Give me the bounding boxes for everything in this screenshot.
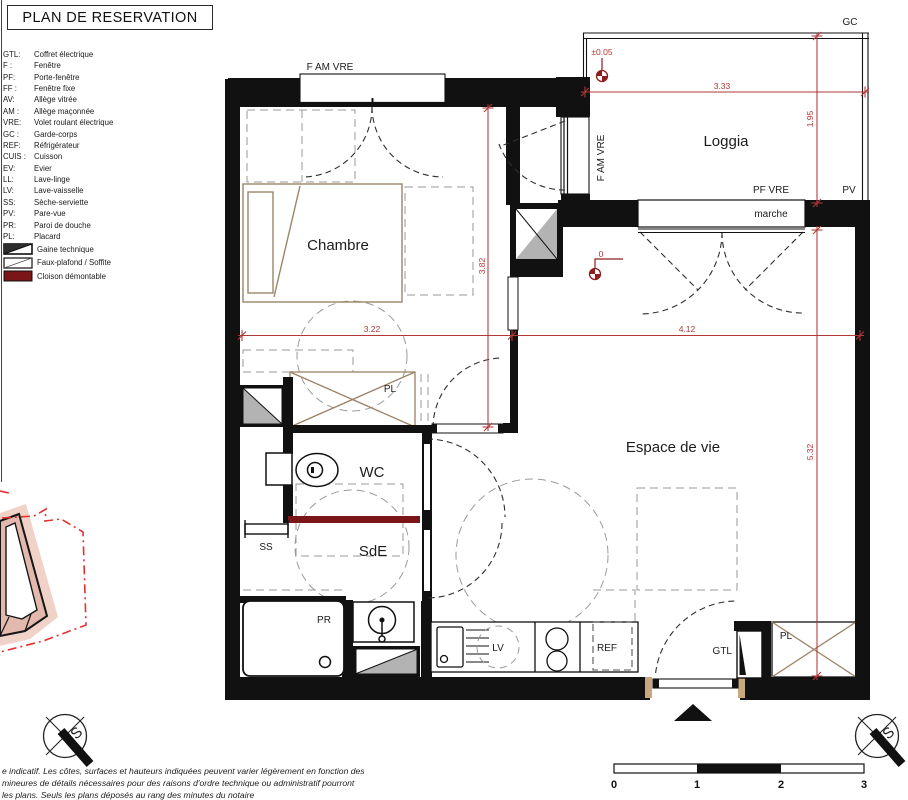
scale-tick-label: 1	[694, 779, 700, 791]
entrance-door	[645, 675, 745, 700]
furniture-dashed	[243, 110, 737, 672]
dim-chambre-width: 3.22	[364, 324, 381, 334]
cloison-demontable	[288, 516, 420, 523]
label-marche: marche	[754, 209, 788, 220]
window-chambre	[300, 74, 445, 107]
scale-tick-label: 0	[611, 779, 617, 791]
window-loggia	[561, 117, 589, 194]
room-label-chambre: Chambre	[307, 237, 369, 254]
footer-line: e indicatif. Les côtes, surfaces et haut…	[2, 766, 472, 778]
room-label-espace: Espace de vie	[626, 439, 720, 456]
entrance-arrow-icon	[674, 704, 712, 721]
gaine-technique-box	[353, 646, 420, 677]
door-leaves	[424, 424, 504, 596]
washbasin	[353, 602, 414, 642]
dimension-lines	[238, 32, 869, 680]
label-pl-chambre: PL	[384, 384, 397, 395]
towel-radiator	[245, 520, 288, 538]
placard-chambre-box	[290, 372, 415, 427]
dim-espace-width: 4.12	[679, 324, 696, 334]
scale-tick-label: 2	[778, 779, 784, 791]
gtl-box	[737, 631, 762, 678]
level-value-loggia: ±0.05	[591, 47, 612, 57]
level-marker-loggia	[597, 58, 608, 82]
level-value-espace: 0	[599, 249, 604, 259]
shower-tray	[243, 601, 344, 676]
room-label-sde: SdE	[359, 543, 387, 560]
floor-plan: S S 0 1 2 3 Chambre Loggia WC SdE Espace…	[0, 0, 908, 800]
dim-chambre-depth: 3.82	[477, 257, 487, 274]
door-swings	[302, 107, 803, 683]
room-label-wc: WC	[360, 464, 385, 481]
scale-tick-label: 3	[861, 779, 867, 791]
level-marker-espace	[590, 259, 624, 280]
label-pl-entree: PL	[780, 631, 793, 642]
scale-bar: 0 1 2 3	[611, 764, 867, 791]
label-gc: GC	[843, 17, 858, 28]
label-pr: PR	[317, 615, 331, 626]
dim-espace-depth: 5.32	[805, 443, 815, 460]
label-f-am-vre-loggia: F AM VRE	[596, 134, 607, 181]
footer-line: mineures de détails nécessaires pour des…	[2, 778, 472, 790]
footer-disclaimer: e indicatif. Les côtes, surfaces et haut…	[2, 766, 472, 800]
footer-line: les plans. Seuls les plans déposés au ra…	[2, 790, 472, 800]
dim-loggia-width: 3.33	[714, 81, 731, 91]
gaine-technique-box	[510, 203, 563, 265]
label-pf-vre: PF VRE	[753, 185, 789, 196]
site-plan-fragment	[0, 491, 86, 652]
label-lv: LV	[492, 643, 504, 654]
label-f-am-vre-top: F AM VRE	[307, 62, 354, 73]
label-pv: PV	[842, 185, 856, 196]
gaine-technique-box	[240, 385, 285, 427]
label-ref: REF	[597, 643, 617, 654]
reservation-plan-page: PLAN DE RESERVATION GTL:Coffret électriq…	[0, 0, 908, 800]
compass-icon: S	[44, 715, 91, 765]
loggia-railing	[583, 33, 869, 205]
compass-icon: S	[856, 715, 903, 765]
room-label-loggia: Loggia	[703, 133, 749, 150]
label-ss: SS	[259, 542, 273, 553]
dim-loggia-depth: 1.95	[805, 110, 815, 127]
label-gtl: GTL	[713, 646, 733, 657]
toilet	[266, 453, 338, 487]
